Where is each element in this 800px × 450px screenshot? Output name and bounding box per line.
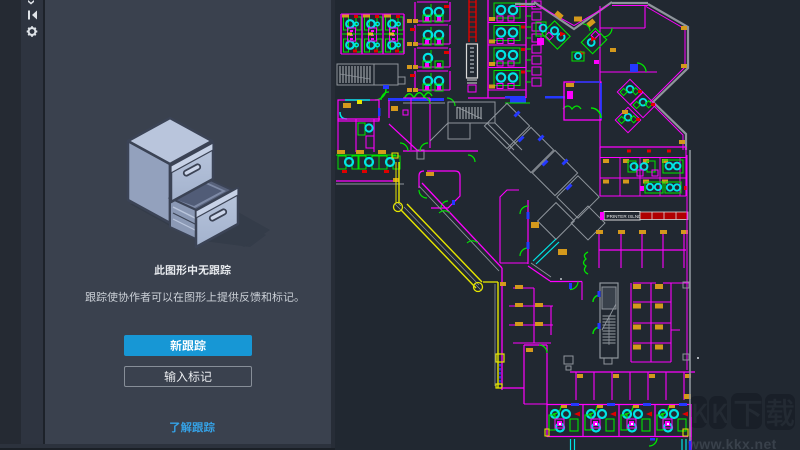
svg-text:www.kkx.net: www.kkx.net (687, 436, 777, 450)
svg-text:PRINTER ISLND: PRINTER ISLND (607, 214, 643, 219)
